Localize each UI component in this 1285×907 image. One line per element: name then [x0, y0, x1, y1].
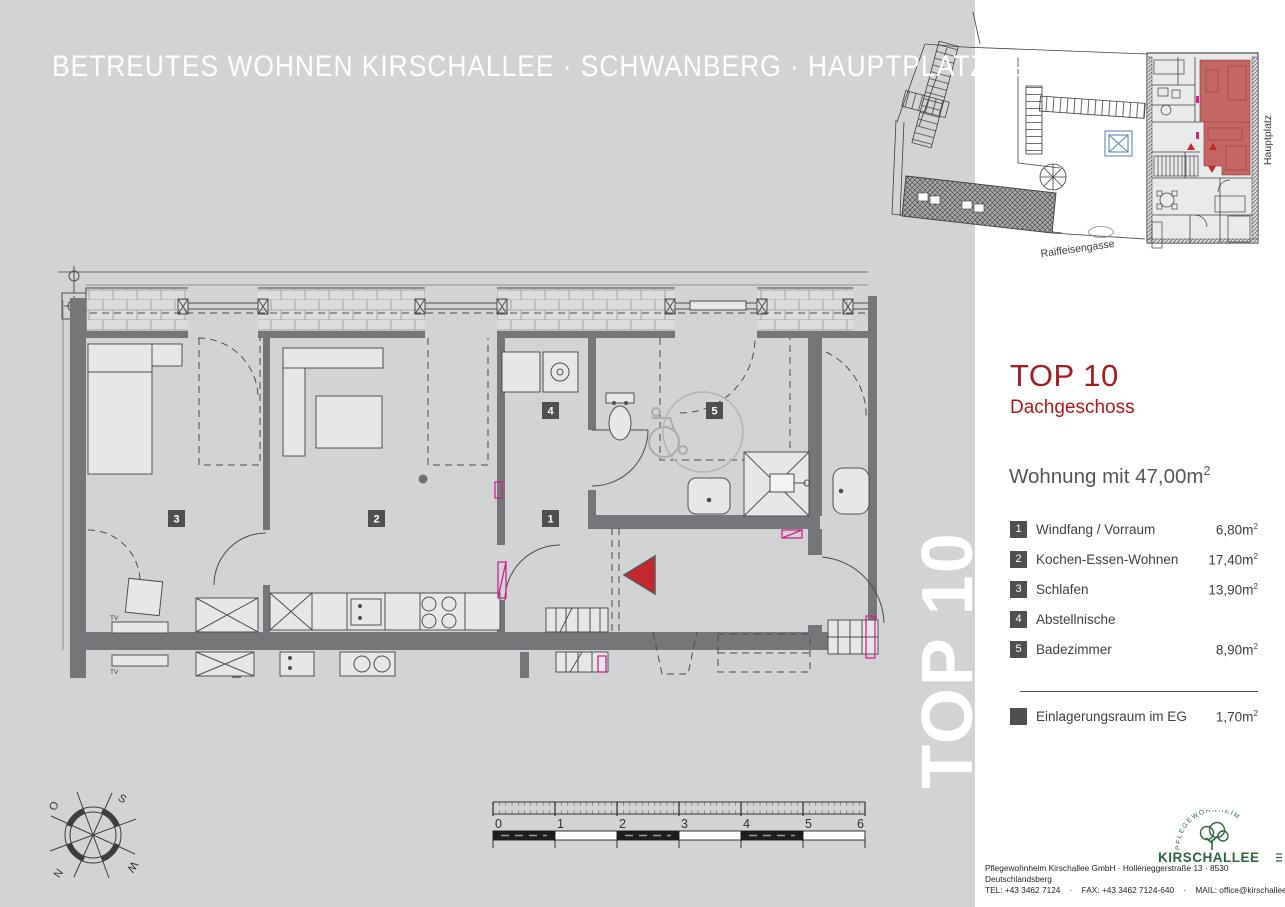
- badge-room-3: 3: [173, 514, 179, 526]
- watermark-top10: TOP 10: [877, 515, 1007, 805]
- legend-badge-5: 5: [1010, 641, 1027, 658]
- scale-numbers: 0 1 2 3 4 5 6: [495, 817, 864, 831]
- legend-label-1: Windfang / Vorraum: [1036, 522, 1216, 537]
- compass-east: O: [47, 799, 62, 812]
- apartment-area-text: Wohnung mit 47,00m: [1009, 465, 1203, 488]
- legend-label-3: Schlafen: [1036, 582, 1208, 597]
- svg-text:2: 2: [619, 817, 626, 831]
- bath-sink: [688, 478, 730, 514]
- coat-rack: [546, 608, 608, 632]
- page-title: BETREUTES WOHNEN KIRSCHALLEE · SCHWANBER…: [52, 50, 1027, 84]
- apartment-total-area: Wohnung mit 47,00m2: [1009, 463, 1211, 489]
- entrance-arrow: [624, 556, 655, 594]
- site-arcade-vertical: [1026, 86, 1042, 154]
- kirschallee-logo: PFLEGEWOHNHEIM KIRSCHALLEE: [1150, 810, 1285, 868]
- svg-text:5: 5: [805, 817, 812, 831]
- legend-row-kochen: 2 Kochen-Essen-Wohnen 17,40m2: [1010, 551, 1258, 568]
- site-overview-plan: Raiffeisengasse Hauptplatz: [860, 0, 1285, 265]
- unit-floor-label: Dachgeschoss: [1010, 397, 1135, 419]
- toilet: [606, 393, 634, 440]
- furniture: [88, 344, 878, 676]
- legend-area-5: 8,90m2: [1216, 641, 1258, 658]
- legend-badge-1: 1: [1010, 521, 1027, 538]
- legend-label-4: Abstellnische: [1036, 612, 1258, 627]
- tv-label-1: TV: [110, 615, 119, 622]
- tv-sideboard: [112, 622, 168, 633]
- storage-label: Einlagerungsraum im EG: [1036, 709, 1216, 724]
- legend-badge-4: 4: [1010, 611, 1027, 628]
- footer-address: Pflegewohnheim Kirschallee GmbH · Hollen…: [985, 863, 1273, 896]
- site-arcade-horizontal: [1039, 96, 1145, 118]
- svg-text:0: 0: [495, 817, 502, 831]
- legend-area-1: 6,80m2: [1216, 521, 1258, 538]
- contact-line: TEL: +43 3462 7124 · FAX: +43 3462 7124-…: [985, 885, 1273, 896]
- legend-divider: [1020, 691, 1258, 692]
- street-label-raiffeisengasse: Raiffeisengasse: [1040, 238, 1116, 260]
- compass-graphic: [50, 792, 136, 878]
- floor-plan: TV TV 1 2 3 4 5: [55, 265, 885, 730]
- badge-room-5: 5: [711, 406, 717, 418]
- column-dot: [419, 475, 428, 484]
- logo-arc-text: PFLEGEWOHNHEIM: [1175, 810, 1242, 850]
- svg-text:TOP 10: TOP 10: [908, 531, 988, 789]
- legend-row-schlafen: 3 Schlafen 13,90m2: [1010, 581, 1258, 598]
- legend-row-badezimmer: 5 Badezimmer 8,90m2: [1010, 641, 1258, 658]
- svg-text:4: 4: [743, 817, 750, 831]
- wardrobe: [196, 598, 258, 632]
- storage-badge: [1010, 708, 1027, 725]
- site-facade-south: [1147, 239, 1258, 243]
- legend-label-2: Kochen-Essen-Wohnen: [1036, 552, 1208, 567]
- kitchen-counter: [270, 593, 500, 630]
- scale-ruler: [493, 802, 865, 816]
- storage-room-row: Einlagerungsraum im EG 1,70m2: [1010, 708, 1258, 738]
- compass-north: N: [52, 867, 66, 880]
- shower: [744, 452, 810, 516]
- wheelchair-symbol: [649, 408, 687, 457]
- site-facade-east: [1252, 57, 1258, 239]
- badge-room-2: 2: [373, 514, 379, 526]
- svg-text:3: 3: [681, 817, 688, 831]
- neighbor-sink: [833, 468, 869, 514]
- legend-badge-2: 2: [1010, 551, 1027, 568]
- site-spiral-stair: [1040, 164, 1066, 190]
- site-elevator: [1105, 131, 1132, 156]
- bed: [88, 344, 182, 474]
- sofa: [283, 348, 383, 456]
- apartment-area-sup: 2: [1203, 463, 1210, 478]
- scale-bars: [493, 831, 865, 848]
- badge-room-4: 4: [547, 406, 554, 418]
- unit-title: TOP 10: [1010, 358, 1119, 394]
- armchair: [125, 578, 162, 615]
- svg-text:6: 6: [857, 817, 864, 831]
- logo-registered-mark: [1276, 854, 1282, 861]
- legend-row-abstellnische: 4 Abstellnische: [1010, 611, 1258, 628]
- storage-area: 1,70m2: [1216, 708, 1258, 725]
- plan-cutoff: [55, 678, 885, 730]
- compass-rose: O S N W: [40, 785, 150, 895]
- badge-room-1: 1: [547, 514, 553, 526]
- legend-row-windfang: 1 Windfang / Vorraum 6,80m2: [1010, 521, 1258, 538]
- scale-bar: 0 1 2 3 4 5 6: [487, 798, 877, 854]
- logo-tree-icon: [1201, 823, 1229, 851]
- site-highlighted-unit-top10: [1200, 60, 1250, 175]
- tv-label-2: TV: [110, 669, 119, 676]
- legend-label-5: Badezimmer: [1036, 642, 1216, 657]
- legend-area-3: 13,90m2: [1208, 581, 1258, 598]
- room-legend: 1 Windfang / Vorraum 6,80m2 2 Kochen-Ess…: [1010, 521, 1258, 671]
- plan-sheet: BETREUTES WOHNEN KIRSCHALLEE · SCHWANBER…: [0, 0, 1285, 907]
- svg-text:1: 1: [557, 817, 564, 831]
- legend-badge-3: 3: [1010, 581, 1027, 598]
- compass-west: W: [124, 859, 140, 875]
- legend-area-2: 17,40m2: [1208, 551, 1258, 568]
- street-label-hauptplatz: Hauptplatz: [1262, 115, 1274, 165]
- address-line: Pflegewohnheim Kirschallee GmbH · Hollen…: [985, 863, 1273, 885]
- storage-niche-appliances: [502, 352, 578, 392]
- site-facade-west: [1147, 57, 1152, 239]
- roof-edge-lines: [58, 272, 868, 285]
- compass-south: S: [116, 792, 129, 806]
